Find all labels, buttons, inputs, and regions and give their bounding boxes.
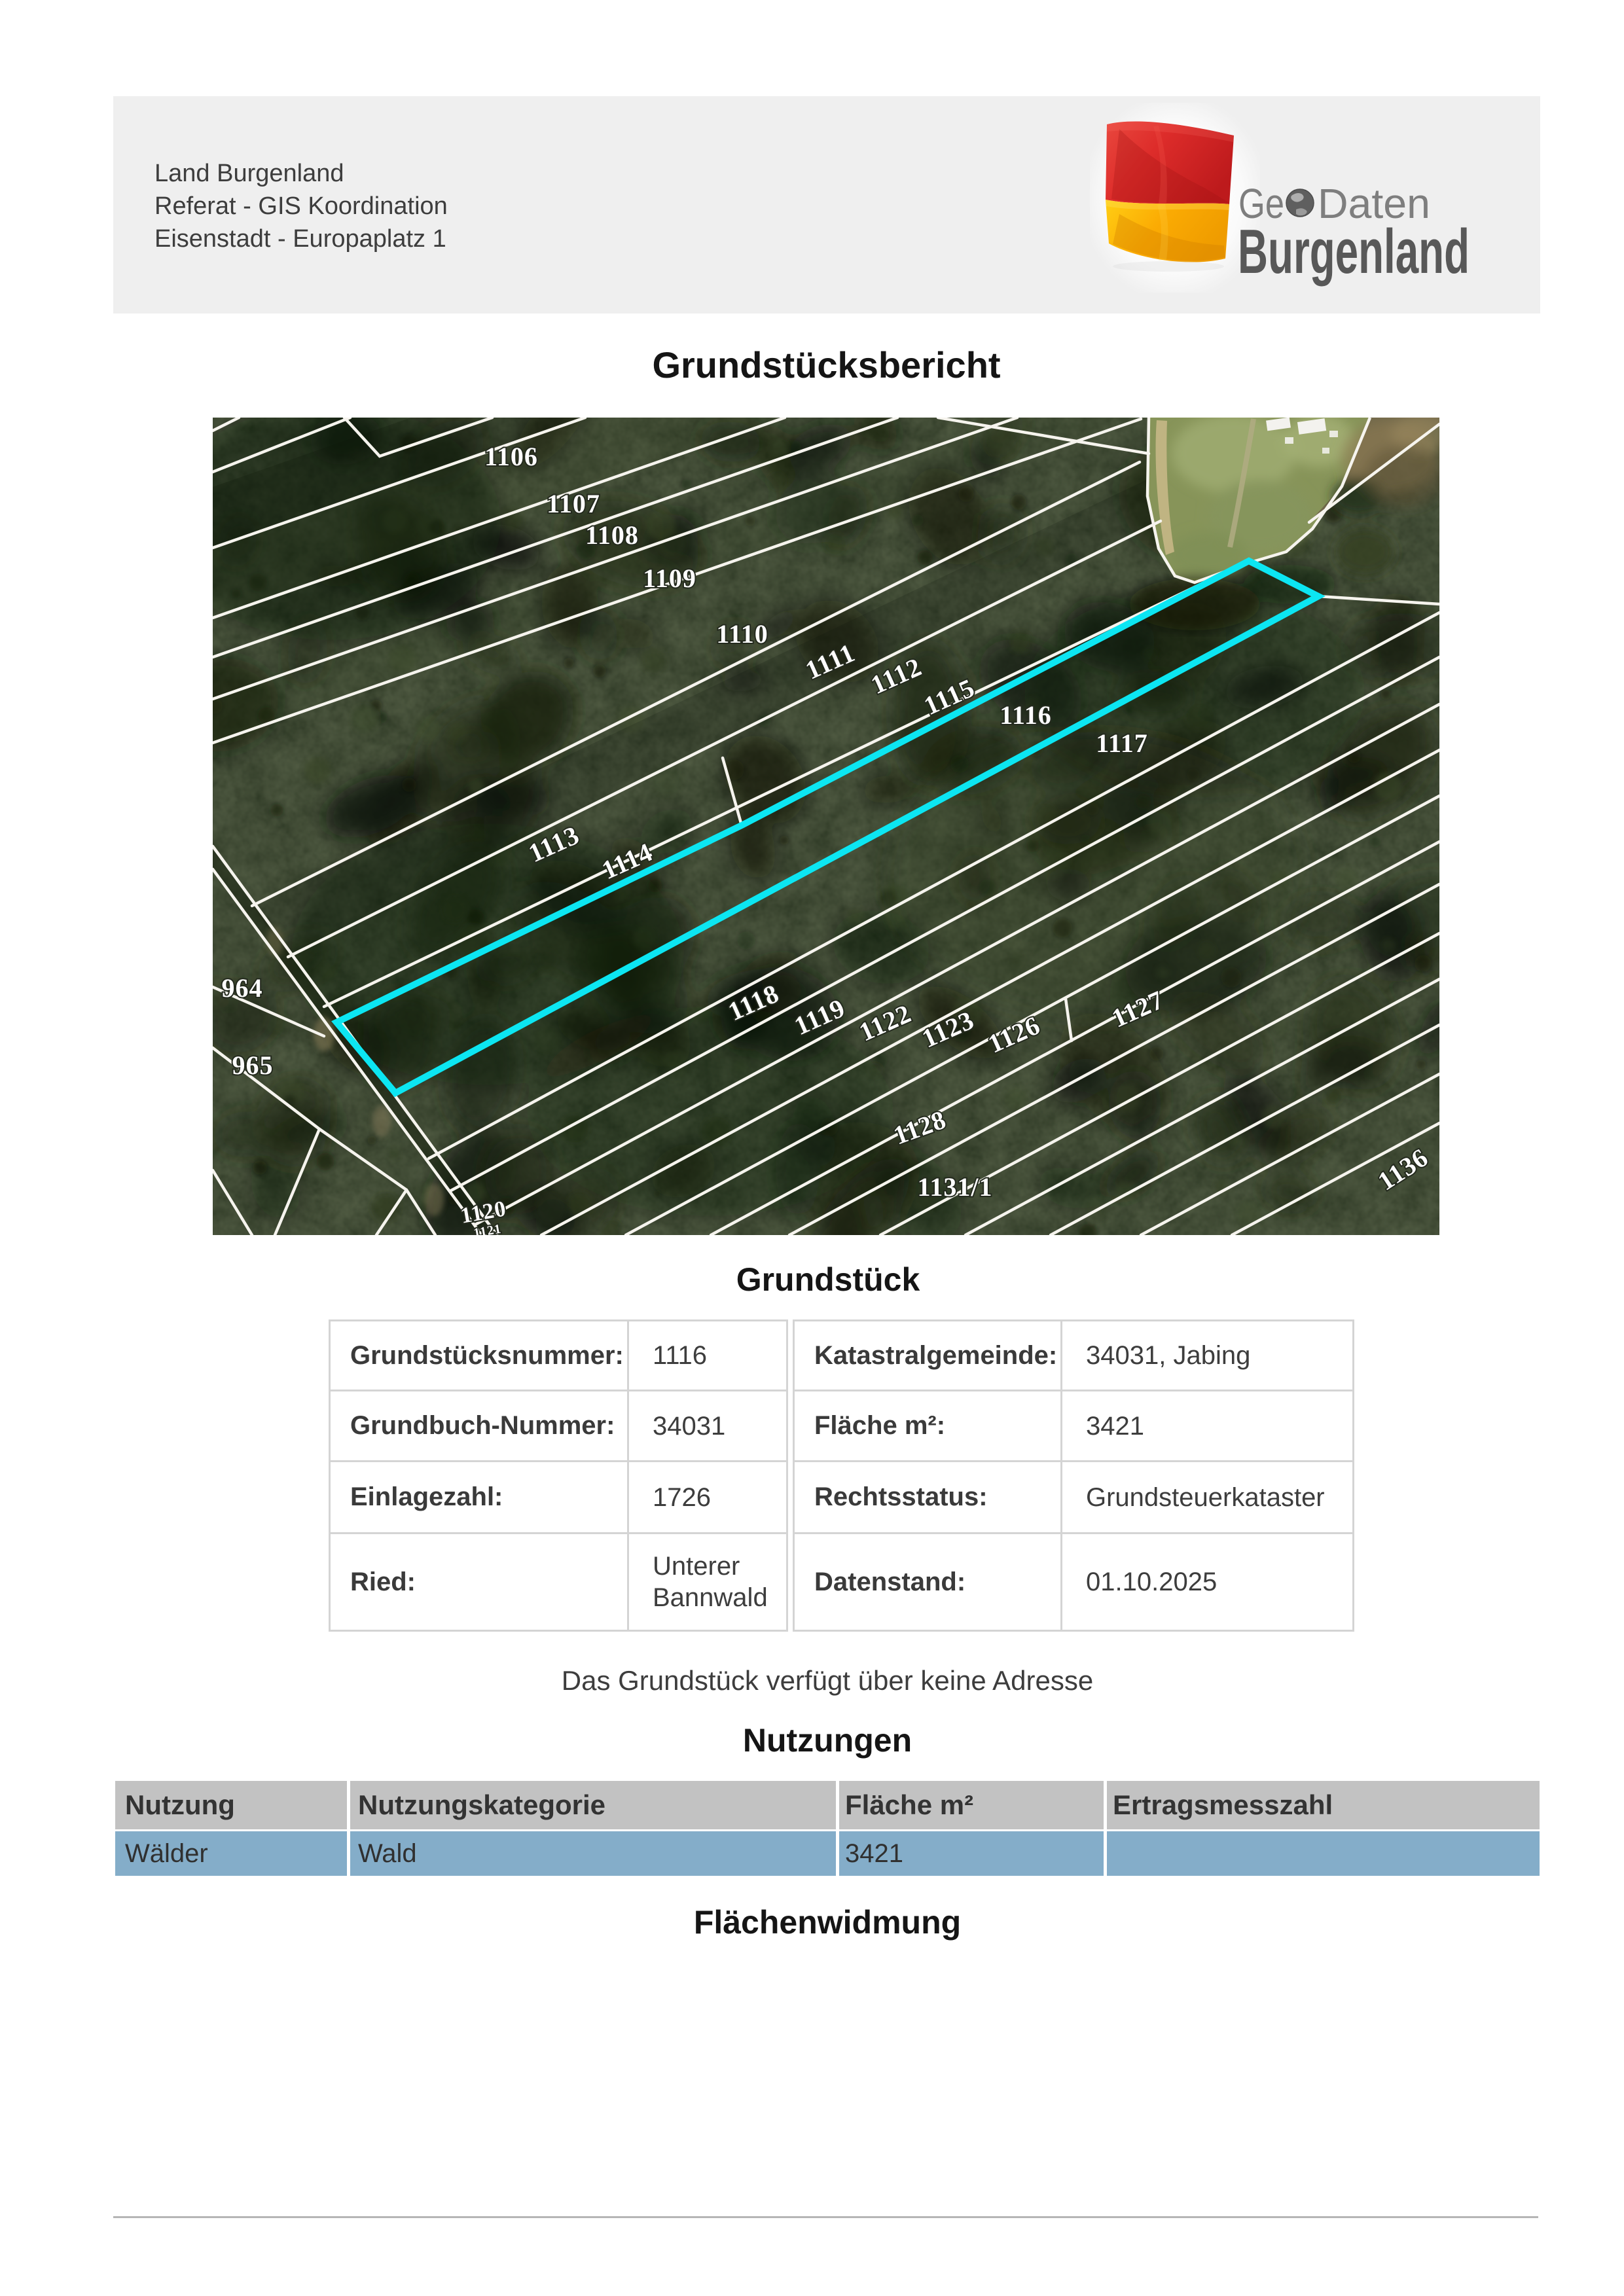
svg-text:1116: 1116 <box>1000 700 1052 730</box>
svg-text:1108: 1108 <box>585 520 639 550</box>
svg-text:1107: 1107 <box>547 489 600 518</box>
svg-text:1106: 1106 <box>484 442 538 471</box>
svg-text:1131/1: 1131/1 <box>918 1172 993 1202</box>
svg-text:965: 965 <box>232 1050 274 1080</box>
svg-text:964: 964 <box>222 973 263 1003</box>
svg-text:1109: 1109 <box>643 564 696 593</box>
svg-text:Burgenland: Burgenland <box>1238 217 1470 287</box>
svg-text:1110: 1110 <box>716 619 768 649</box>
svg-text:1117: 1117 <box>1096 728 1148 758</box>
